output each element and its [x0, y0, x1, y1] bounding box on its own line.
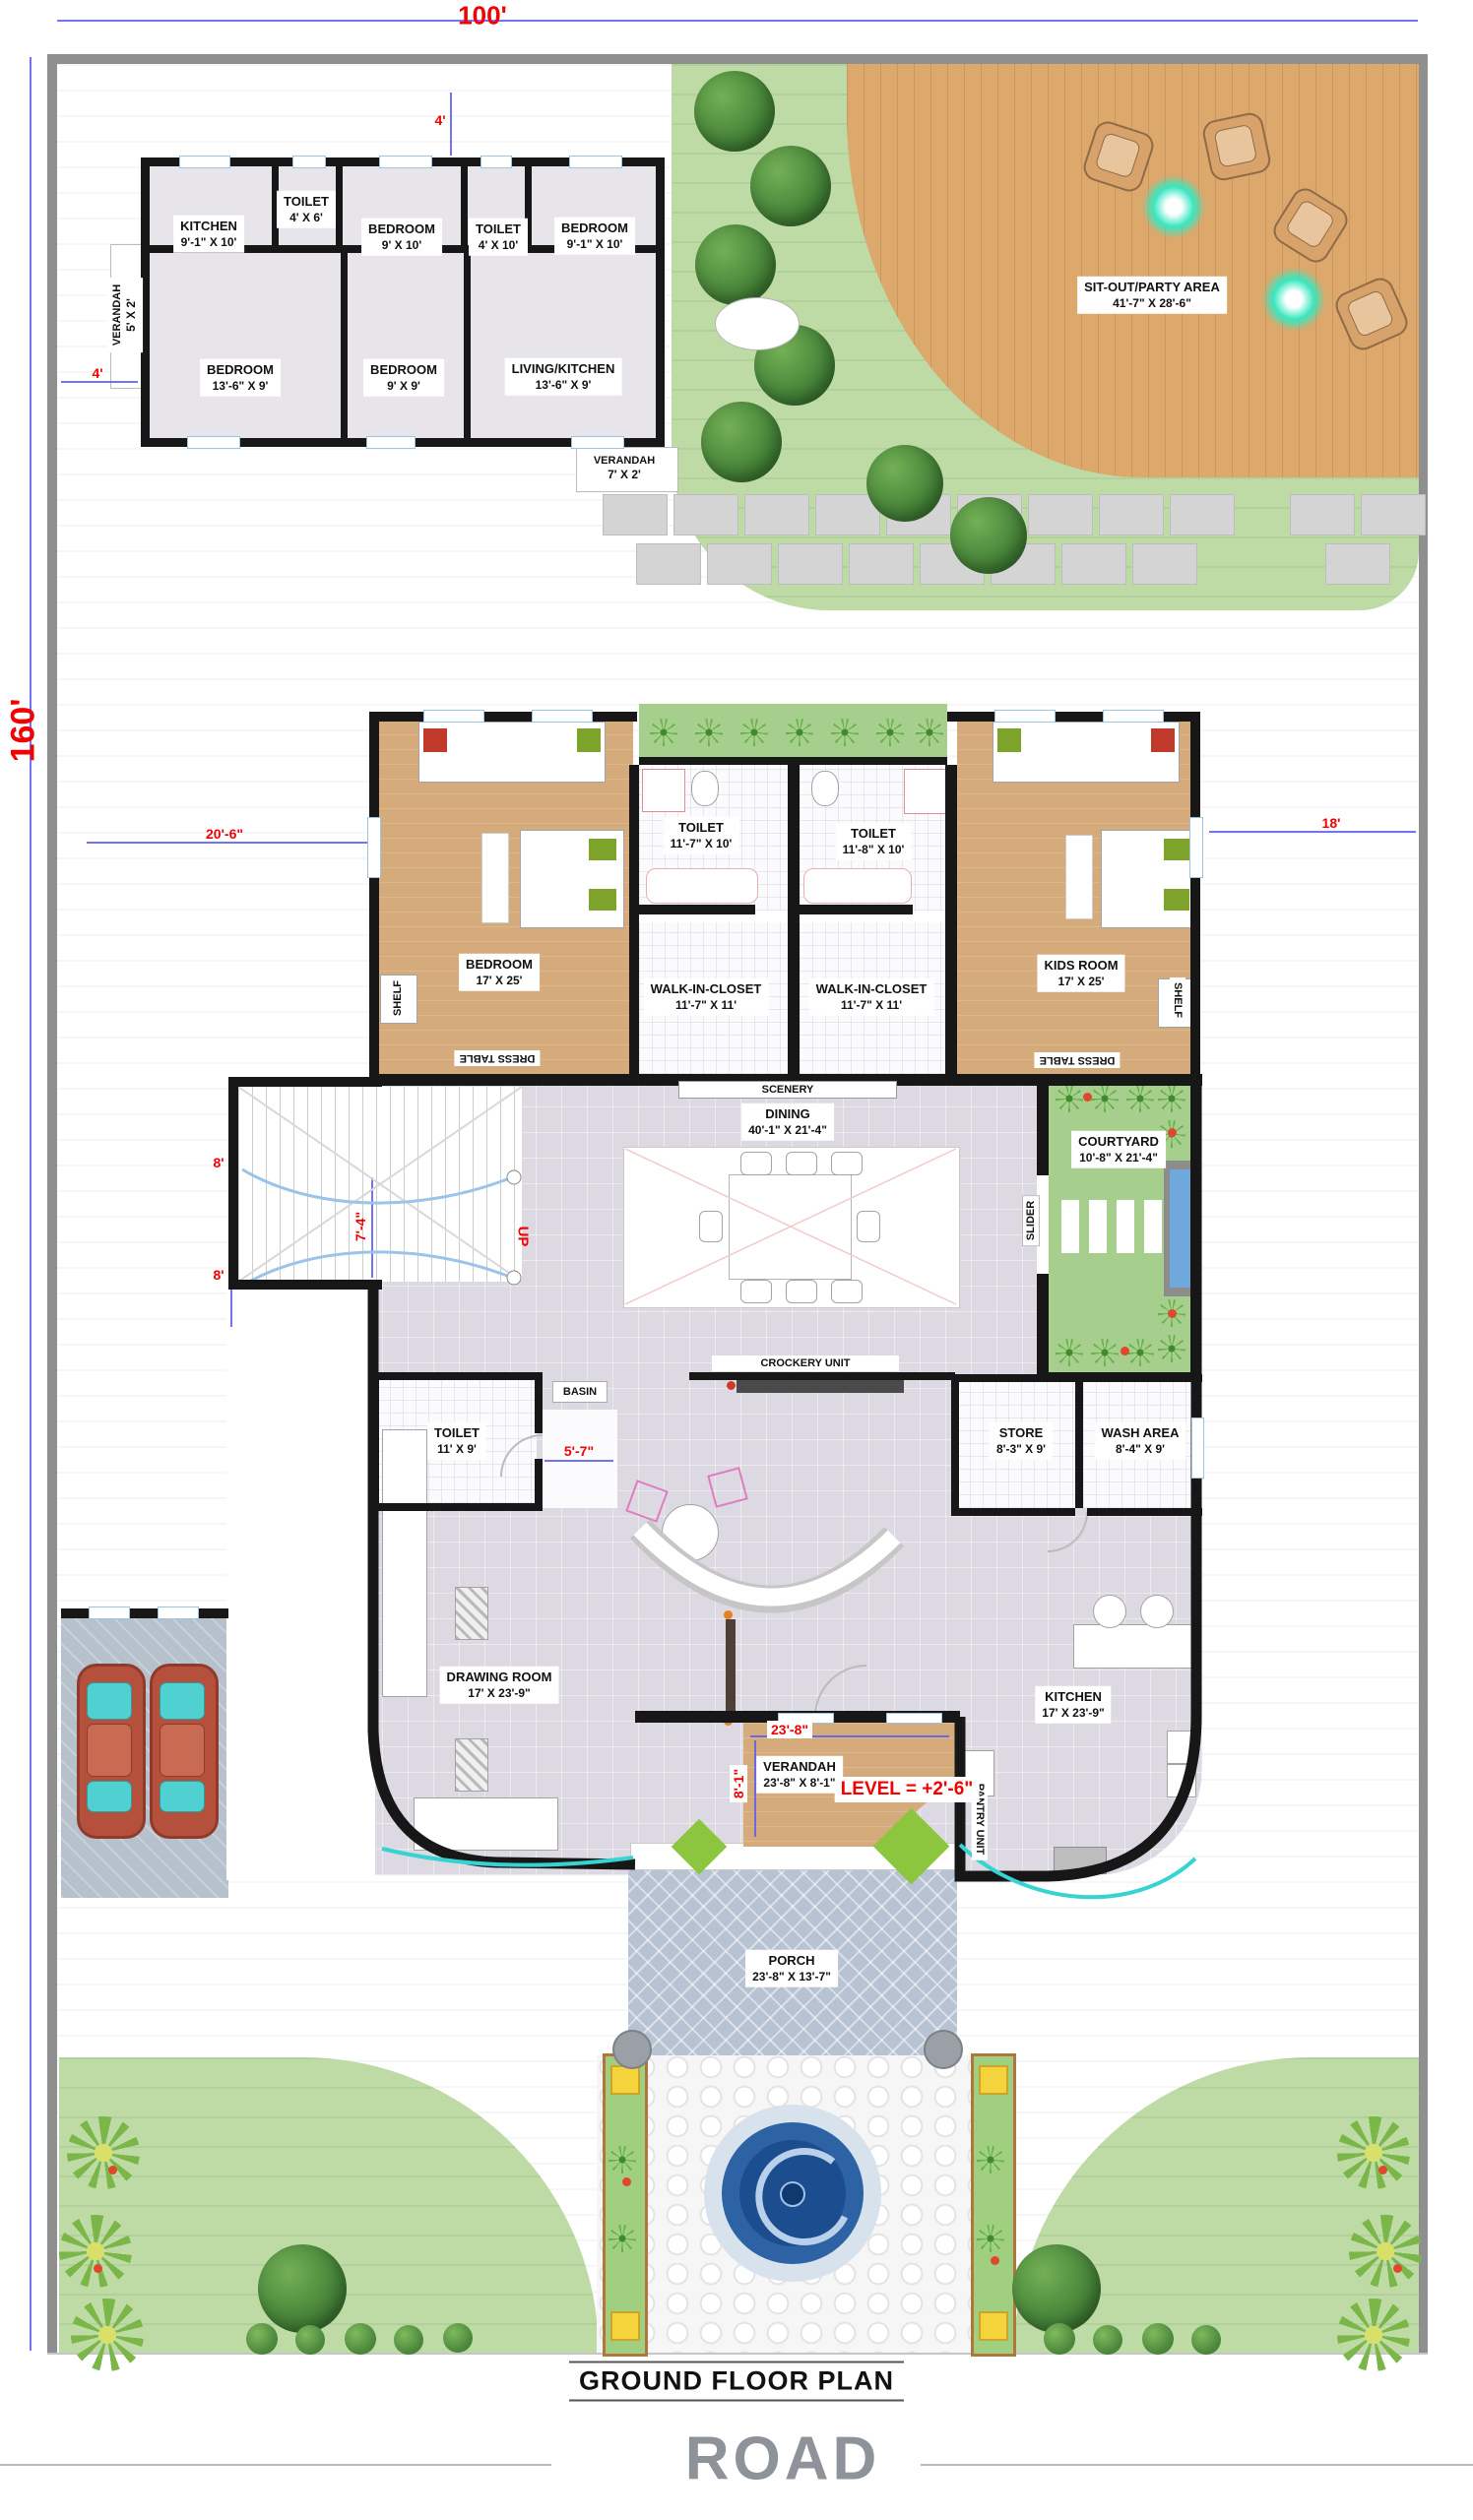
dim-4ft-left: 4'	[92, 365, 102, 381]
room-label-bedroom-out3: BEDROOM13'-6" X 9'	[200, 359, 281, 397]
room-label-kitchen-out: KITCHEN9'-1" X 10'	[173, 216, 244, 253]
room-label-verandah-out2: VERANDAH7' X 2'	[587, 451, 662, 486]
sofa	[414, 1797, 558, 1851]
deck-chair	[1200, 110, 1273, 183]
basin-alcove	[543, 1410, 617, 1508]
sink	[1167, 1764, 1196, 1797]
room-label-sitout: SIT-OUT/PARTY AREA41'-7" X 28'-6"	[1077, 277, 1227, 314]
bathtub	[646, 868, 758, 904]
dim-plot-width: 100'	[458, 1, 507, 31]
label-dress-table-right: DRESS TABLE	[1035, 1052, 1121, 1068]
dim-level: LEVEL = +2'-6"	[835, 1777, 980, 1802]
boundary-left	[47, 54, 57, 2355]
water-feature	[1170, 1169, 1191, 1288]
kitchen-counter	[1073, 1624, 1200, 1669]
label-scenery: SCENERY	[678, 1081, 897, 1099]
dim-8-top: 8'	[213, 1155, 224, 1170]
room-label-verandah-main: VERANDAH23'-8" X 8'-1"	[756, 1756, 843, 1794]
staircase	[238, 1087, 522, 1282]
glass-table	[455, 1738, 488, 1792]
wc	[811, 771, 839, 806]
room-label-closet2: WALK-IN-CLOSET11'-7" X 11'	[809, 978, 934, 1016]
room-label-toilet2: TOILET11'-8" X 10'	[836, 823, 912, 860]
wc	[691, 771, 719, 806]
exterior-mask	[226, 1290, 375, 1880]
sink	[1167, 1731, 1196, 1764]
room-label-washarea: WASH AREA8'-4" X 9'	[1095, 1422, 1186, 1460]
lawn-gazebo	[715, 297, 800, 350]
dim-8-1: 8'-1"	[730, 1765, 747, 1802]
deck-light	[1142, 175, 1205, 238]
label-shelf-left: SHELF	[390, 976, 406, 1021]
round-table	[662, 1504, 719, 1561]
label-dress-table-left: DRESS TABLE	[455, 1050, 541, 1066]
road-label: ROAD	[685, 2425, 881, 2494]
room-label-kitchen-main: KITCHEN17' X 23'-9"	[1035, 1686, 1111, 1724]
dim-8-bottom: 8'	[213, 1267, 224, 1283]
room-label-bedroom-out1: BEDROOM9' X 10'	[361, 219, 442, 256]
room-label-dining: DINING40'-1" X 21'-4"	[741, 1103, 834, 1141]
floor-plan-page: { "plan": { "title": "GROUND FLOOR PLAN"…	[0, 0, 1473, 2520]
rug	[481, 833, 509, 923]
label-up: UP	[515, 1227, 532, 1247]
fountain-center	[780, 2181, 805, 2207]
rug	[1065, 835, 1093, 919]
stool	[1093, 1595, 1126, 1628]
porch-column	[924, 2030, 963, 2069]
room-label-closet1: WALK-IN-CLOSET11'-7" X 11'	[644, 978, 769, 1016]
porch-column	[612, 2030, 652, 2069]
room-label-kidsroom: KIDS ROOM17' X 25'	[1037, 955, 1124, 992]
label-shelf-right: SHELF	[1170, 977, 1185, 1023]
stool	[1140, 1595, 1174, 1628]
crockery-cabinet	[736, 1380, 904, 1393]
room-label-toilet1: TOILET11'-7" X 10'	[664, 817, 739, 854]
room-label-bedroom-master: BEDROOM17' X 25'	[459, 954, 540, 991]
glass-table	[455, 1587, 488, 1640]
dim-18: 18'	[1322, 815, 1341, 831]
room-label-toilet-out1: TOILET4' X 6'	[277, 191, 336, 228]
car	[77, 1664, 146, 1839]
dim-plot-height: 160'	[5, 699, 43, 763]
car	[150, 1664, 219, 1839]
dim-5-7: 5'-7"	[564, 1443, 594, 1459]
page-title: GROUND FLOOR PLAN	[569, 2362, 904, 2402]
room-label-porch: PORCH23'-8" X 13'-7"	[745, 1950, 838, 1987]
room-label-bedroom-out2: BEDROOM9'-1" X 10'	[554, 218, 635, 255]
label-slider: SLIDER	[1022, 1195, 1040, 1246]
room-label-verandah-out1: VERANDAH5' X 2'	[107, 278, 143, 352]
room-label-livingkitchen-out: LIVING/KITCHEN13'-6" X 9'	[505, 358, 622, 396]
dim-23-8: 23'-8"	[767, 1721, 812, 1738]
dim-7-4: 7'-4"	[352, 1212, 368, 1241]
dining-table	[729, 1174, 852, 1280]
room-label-store: STORE8'-3" X 9'	[990, 1422, 1053, 1460]
shower	[904, 769, 949, 814]
room-label-drawing: DRAWING ROOM17' X 23'-9"	[440, 1667, 559, 1704]
boundary-top	[47, 54, 1428, 64]
room-label-toilet3: TOILET11' X 9'	[427, 1422, 486, 1460]
room-label-bedroom-out4: BEDROOM9' X 9'	[363, 359, 444, 397]
bathtub	[803, 868, 912, 904]
dim-4ft-top: 4'	[434, 112, 445, 128]
tv-unit	[726, 1619, 736, 1715]
stove	[1054, 1847, 1107, 1874]
dim-20-6: 20'-6"	[206, 826, 243, 842]
boundary-right	[1419, 54, 1428, 2355]
shower	[642, 769, 685, 812]
room-label-courtyard: COURTYARD10'-8" X 21'-4"	[1071, 1131, 1166, 1168]
sofa-long	[382, 1429, 427, 1697]
label-basin: BASIN	[552, 1381, 608, 1403]
deck-light	[1262, 268, 1325, 331]
outbuilding	[141, 157, 665, 447]
room-label-toilet-out2: TOILET4' X 10'	[469, 219, 528, 256]
label-crockery-unit: CROCKERY UNIT	[712, 1355, 899, 1371]
